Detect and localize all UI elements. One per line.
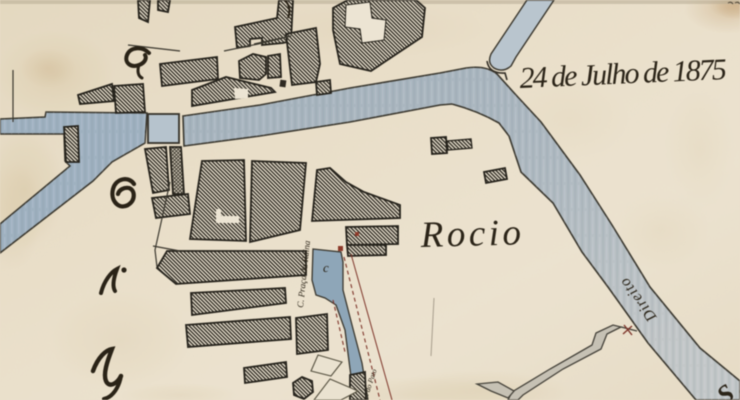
svg-text:Rocio: Rocio xyxy=(419,212,525,256)
svg-text:c: c xyxy=(323,260,329,275)
